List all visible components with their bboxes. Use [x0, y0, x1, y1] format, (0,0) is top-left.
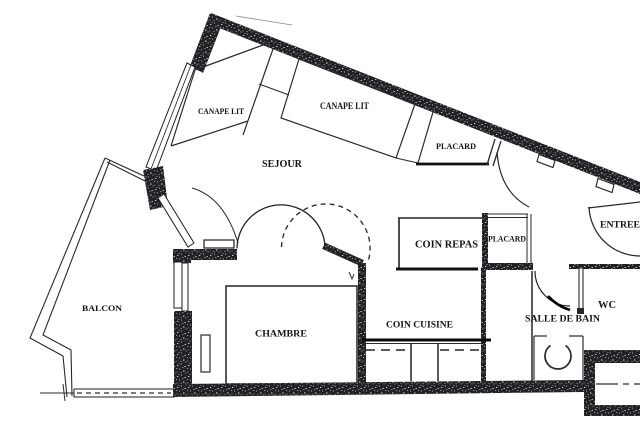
svg-text:BALCON: BALCON	[82, 303, 123, 313]
svg-text:COIN REPAS: COIN REPAS	[415, 240, 478, 251]
svg-text:ENTREE: ENTREE	[600, 221, 640, 231]
svg-text:CANAPE LIT: CANAPE LIT	[198, 106, 244, 116]
svg-text:PLACARD: PLACARD	[436, 141, 476, 151]
svg-text:PLACARD: PLACARD	[488, 234, 526, 244]
svg-text:SALLE DE BAIN: SALLE DE BAIN	[525, 315, 600, 325]
svg-text:COIN CUISINE: COIN CUISINE	[386, 320, 453, 330]
svg-text:SEJOUR: SEJOUR	[262, 159, 303, 170]
svg-text:CANAPE LIT: CANAPE LIT	[320, 101, 369, 111]
svg-text:WC: WC	[598, 300, 616, 311]
svg-text:CHAMBRE: CHAMBRE	[255, 330, 307, 340]
